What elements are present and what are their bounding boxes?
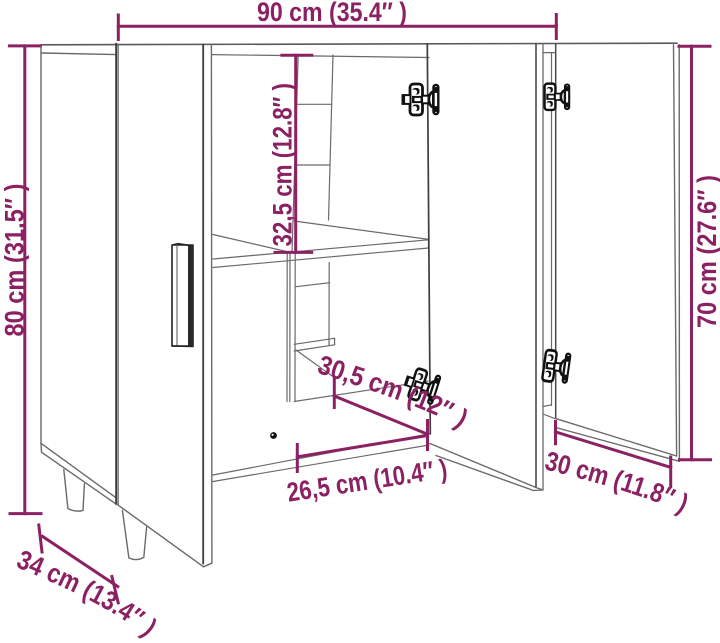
svg-text:90 cm (35.4″ ): 90 cm (35.4″ ) bbox=[257, 0, 407, 27]
svg-text:80 cm (31.5″ ): 80 cm (31.5″ ) bbox=[0, 184, 30, 337]
svg-text:32,5 cm (12.8″ ): 32,5 cm (12.8″ ) bbox=[268, 83, 298, 247]
svg-text:70 cm (27.6″ ): 70 cm (27.6″ ) bbox=[692, 175, 720, 328]
